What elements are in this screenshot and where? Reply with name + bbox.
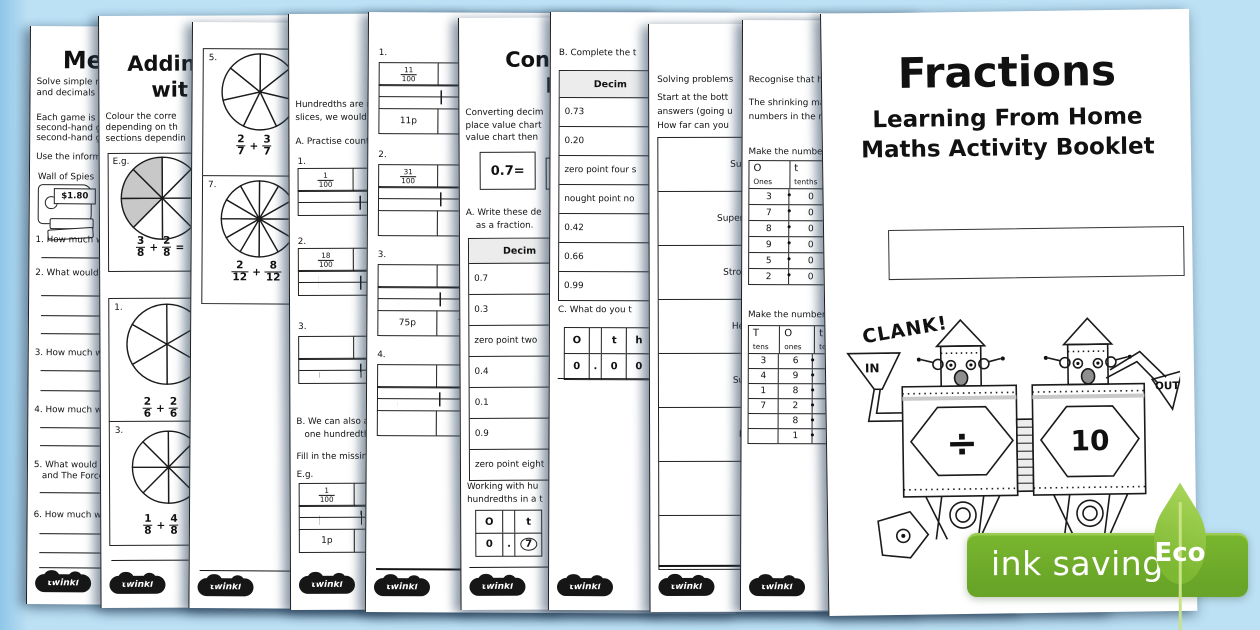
fraction-sum: 18 + 48	[143, 514, 179, 537]
pie-chart	[220, 179, 300, 262]
section-a-label: A. Write these de	[466, 208, 542, 219]
example-label: E.g.	[297, 470, 314, 481]
place-value-chart: O t h 0 . 0 0	[564, 327, 652, 380]
eco-leaf-icon: Eco	[1143, 482, 1217, 601]
twinkl-logo: twinkl	[557, 578, 613, 596]
section-b-label: B. Complete the t	[559, 48, 637, 59]
page-title: Addin	[127, 52, 196, 76]
fraction-sum: 26 + 26	[143, 397, 179, 420]
section-b-label: B. We can also a	[296, 417, 369, 428]
item-number: 3.	[115, 426, 123, 437]
item-number: 2.	[378, 150, 386, 161]
resource-preview: Me Solve simple mea and decimals to t Ea…	[0, 0, 1260, 630]
twinkl-logo: twinkl	[374, 578, 430, 596]
clank-label: CLANK!	[861, 312, 950, 348]
robot-head	[1063, 318, 1111, 345]
booklet-subtitle: Learning From Home	[842, 103, 1172, 134]
booklet-cover-page: Fractions Learning From Home Maths Activ…	[820, 9, 1197, 616]
item-number: 7.	[208, 180, 216, 191]
item-number: 4.	[377, 350, 385, 361]
twinkl-logo: twinkl	[469, 578, 525, 596]
item-number: 1.	[297, 157, 305, 168]
out-label: OUT	[1155, 380, 1181, 392]
fraction-sum: 212 + 812	[231, 260, 281, 283]
divide-symbol: ÷	[946, 421, 978, 465]
item-number: 3.	[298, 322, 306, 333]
twinkl-logo: twinkl	[35, 574, 91, 592]
eco-label: Eco	[1143, 538, 1217, 568]
twinkl-logo: twinkl	[299, 576, 355, 594]
page-title: Me	[63, 46, 103, 74]
fraction-sum: 27 + 37	[236, 134, 272, 157]
booklet-title: Fractions	[842, 45, 1173, 99]
question-1: 1. How much wo	[35, 235, 108, 246]
shop-name: Wall of Spies	[38, 172, 94, 183]
item-number: 3.	[378, 250, 386, 261]
question-6: 6. How much wo	[34, 510, 107, 521]
name-box	[888, 226, 1185, 280]
in-label: IN	[865, 361, 880, 375]
item-number: 2.	[298, 237, 306, 248]
track-wheel	[1077, 500, 1103, 526]
fraction-sum: 38 + 28 =	[136, 236, 184, 259]
circled-answer: 7	[520, 538, 537, 551]
item-number: 1.	[114, 303, 122, 314]
ten-label: 10	[1070, 424, 1109, 458]
section-c-label: C. What do you t	[558, 305, 632, 316]
question-4: 4. How much wo	[34, 405, 107, 416]
section-a-label: A. Practise count	[295, 137, 369, 148]
question-3: 3. How much wo	[35, 348, 108, 359]
twinkl-logo: twinkl	[749, 578, 805, 596]
connector	[1017, 419, 1034, 491]
item-number: 1.	[379, 48, 387, 59]
twinkl-logo: twinkl	[197, 578, 253, 596]
out-arrow	[1106, 351, 1166, 384]
price-tag: $1.80	[54, 188, 96, 204]
twinkl-logo: twinkl	[658, 578, 714, 596]
twinkl-logo: twinkl	[109, 576, 165, 594]
ink-saving-label: ink saving	[991, 544, 1164, 583]
item-number: 5.	[209, 53, 217, 64]
track-wheel	[950, 502, 976, 528]
question-5: 5. What would th	[34, 460, 109, 471]
decimal-box: 0.7=	[480, 152, 536, 190]
robots-illustration: CLANK! IN ÷ 10	[839, 305, 1183, 565]
question-2: 2. What would t	[35, 268, 105, 279]
place-value-chart: O t 0 . 7	[475, 510, 543, 557]
